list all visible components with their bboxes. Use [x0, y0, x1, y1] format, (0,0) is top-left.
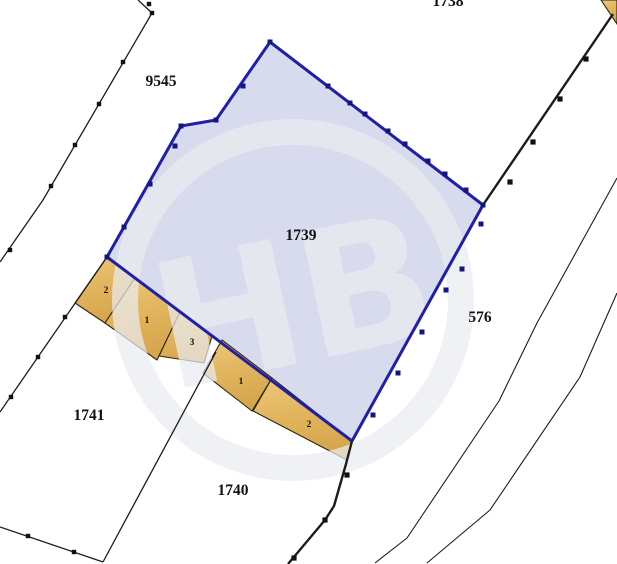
survey-tick — [26, 534, 30, 538]
parcel-border-tick — [173, 144, 178, 149]
survey-tick — [150, 11, 154, 15]
building-number-label: 3 — [190, 338, 195, 348]
parcel-border-tick — [179, 124, 184, 129]
parcel-border-tick — [214, 118, 219, 123]
survey-tick — [97, 102, 101, 106]
parcel-border-tick — [403, 142, 408, 147]
parcel-border-tick — [396, 371, 401, 376]
parcel-border-tick — [479, 222, 484, 227]
parcel-number-label: 9545 — [146, 73, 177, 90]
parcel-border-tick — [386, 129, 391, 134]
parcel-border-tick — [122, 225, 127, 230]
parcel-number-label: 1740 — [218, 482, 249, 499]
building-number-label: 2 — [104, 286, 109, 296]
cadastral-map-view: НВ 1738954557617411740173921312 — [0, 0, 617, 564]
parcel-border-tick — [443, 172, 448, 177]
parcel-border-tick — [105, 255, 110, 260]
parcel-border-tick — [268, 40, 273, 45]
survey-tick — [36, 355, 40, 359]
parcel-border-tick — [420, 330, 425, 335]
survey-tick — [530, 139, 535, 144]
parcel-number-label: 576 — [468, 309, 492, 326]
parcel-border-tick — [348, 101, 353, 106]
parcel-border-tick — [464, 188, 469, 193]
survey-tick — [507, 179, 512, 184]
parcel-border-tick — [481, 203, 486, 208]
parcel-border-tick — [326, 84, 331, 89]
parcel-border-tick — [444, 288, 449, 293]
survey-tick — [147, 2, 151, 6]
survey-tick — [322, 517, 327, 522]
parcel-number-label: 1738 — [433, 0, 464, 10]
building-number-label: 1 — [145, 316, 150, 326]
parcel-border-tick — [426, 159, 431, 164]
survey-tick — [291, 555, 296, 560]
building-number-label: 2 — [307, 420, 312, 430]
survey-tick — [63, 315, 67, 319]
survey-tick — [49, 184, 53, 188]
survey-tick — [557, 96, 562, 101]
parcel-border-tick — [241, 84, 246, 89]
parcel-border-tick — [363, 112, 368, 117]
survey-tick — [121, 60, 125, 64]
building-number-label: 1 — [239, 377, 244, 387]
parcel-border-tick — [460, 267, 465, 272]
survey-tick — [72, 550, 76, 554]
survey-tick — [9, 395, 13, 399]
survey-tick — [344, 472, 349, 477]
survey-tick — [583, 56, 588, 61]
map-canvas[interactable]: НВ 1738954557617411740173921312 — [0, 0, 617, 564]
parcel-border-tick — [148, 182, 153, 187]
survey-tick — [8, 248, 12, 252]
survey-tick — [73, 143, 77, 147]
parcel-number-label-highlighted: 1739 — [286, 227, 317, 244]
parcel-number-label: 1741 — [74, 407, 105, 424]
parcel-border-tick — [371, 413, 376, 418]
